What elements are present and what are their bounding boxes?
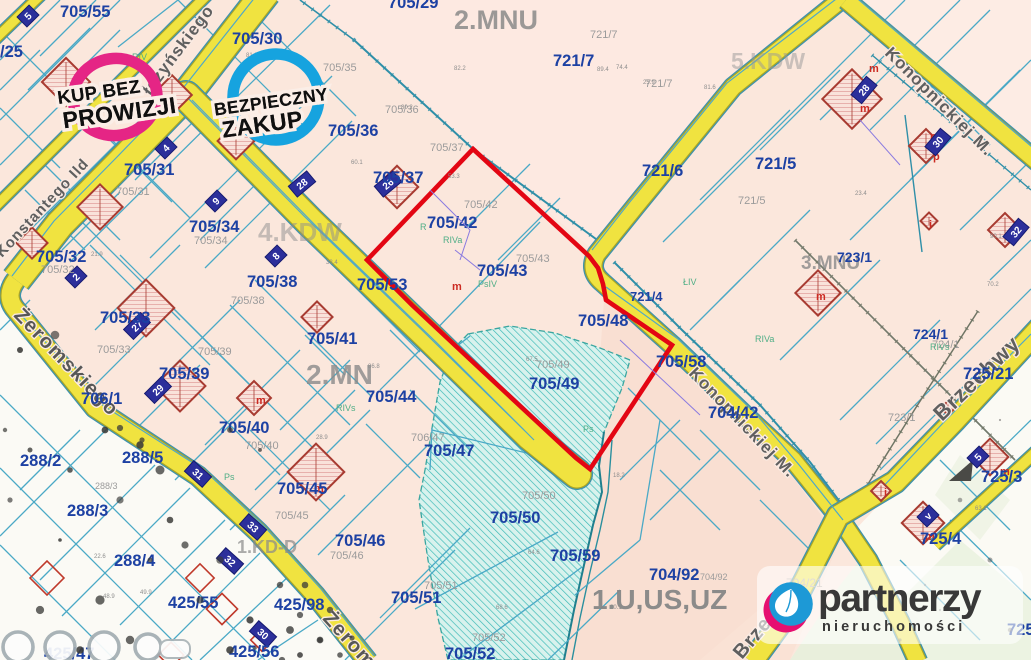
svg-text:R: R: [420, 222, 427, 232]
svg-text:1.KD-D: 1.KD-D: [237, 537, 297, 557]
svg-text:70.2: 70.2: [987, 282, 999, 288]
svg-text:705/38: 705/38: [247, 273, 297, 291]
svg-text:81.6: 81.6: [704, 85, 716, 91]
svg-text:68.6: 68.6: [496, 605, 508, 611]
svg-text:80.2: 80.2: [401, 105, 413, 111]
svg-text:705/37: 705/37: [373, 169, 423, 187]
svg-text:705/45: 705/45: [277, 480, 327, 498]
svg-text:74.4: 74.4: [616, 65, 628, 71]
svg-text:288/3: 288/3: [67, 502, 108, 520]
svg-text:705/46: 705/46: [335, 532, 385, 550]
svg-text:i: i: [884, 487, 887, 499]
svg-text:PsIV: PsIV: [478, 279, 497, 289]
svg-text:ŁIV: ŁIV: [683, 277, 697, 287]
svg-text:RIVs: RIVs: [930, 342, 950, 352]
svg-text:705/52: 705/52: [472, 632, 506, 644]
svg-text:288/5: 288/5: [122, 449, 163, 467]
svg-text:25.9: 25.9: [643, 80, 655, 86]
svg-text:i: i: [929, 219, 932, 231]
svg-text:723/1: 723/1: [837, 249, 872, 265]
svg-text:705/30: 705/30: [232, 30, 282, 48]
svg-text:705/31: 705/31: [124, 161, 174, 179]
svg-text:705/58: 705/58: [656, 353, 706, 371]
svg-text:86.8: 86.8: [368, 364, 380, 370]
svg-text:705/53: 705/53: [357, 276, 407, 294]
svg-text:705/29: 705/29: [388, 0, 438, 12]
svg-text:60.1: 60.1: [610, 605, 622, 611]
svg-text:m: m: [860, 103, 870, 115]
svg-text:288/2: 288/2: [20, 452, 61, 470]
svg-text:705/34: 705/34: [194, 235, 228, 247]
svg-text:723/1: 723/1: [888, 412, 916, 424]
svg-text:721/7: 721/7: [553, 52, 594, 70]
svg-text:705/33: 705/33: [97, 344, 131, 356]
svg-text:288/3: 288/3: [95, 481, 118, 491]
svg-text:721/5: 721/5: [738, 195, 766, 207]
svg-text:m: m: [816, 291, 826, 303]
svg-text:Ps: Ps: [224, 472, 235, 482]
svg-text:82.2: 82.2: [454, 66, 466, 72]
svg-text:721/7: 721/7: [590, 29, 618, 41]
svg-text:RIVa: RIVa: [755, 334, 774, 344]
svg-text:704/92: 704/92: [700, 572, 728, 582]
svg-text:21.9: 21.9: [91, 252, 103, 258]
svg-text:705/51: 705/51: [424, 580, 458, 592]
svg-text:2.MN: 2.MN: [306, 359, 373, 390]
svg-text:705/52: 705/52: [445, 645, 495, 660]
svg-text:705/37: 705/37: [430, 142, 464, 154]
svg-text:49.9: 49.9: [140, 590, 152, 596]
svg-text:725/21: 725/21: [963, 365, 1013, 383]
svg-text:23.4: 23.4: [855, 191, 867, 197]
svg-text:2.MNU: 2.MNU: [454, 5, 538, 35]
svg-text:704/42: 704/42: [708, 404, 758, 422]
svg-text:28.9: 28.9: [316, 435, 328, 441]
svg-text:705/50: 705/50: [522, 490, 556, 502]
svg-text:721/4: 721/4: [630, 289, 663, 304]
svg-text:705/42: 705/42: [464, 199, 498, 211]
svg-text:705/49: 705/49: [529, 375, 579, 393]
svg-text:705/36: 705/36: [328, 122, 378, 140]
svg-text:/25: /25: [0, 43, 23, 61]
svg-text:706/1: 706/1: [81, 390, 122, 408]
svg-text:705/45: 705/45: [275, 510, 309, 522]
svg-text:706/47: 706/47: [411, 432, 445, 444]
svg-text:725/4: 725/4: [920, 530, 962, 548]
svg-text:705/39: 705/39: [159, 365, 209, 383]
svg-text:63.1: 63.1: [975, 506, 987, 512]
svg-text:nieruchomości: nieruchomości: [822, 619, 965, 635]
svg-text:721/6: 721/6: [642, 162, 683, 180]
svg-text:89.4: 89.4: [597, 67, 609, 73]
svg-text:m: m: [256, 395, 266, 407]
svg-text:705/44: 705/44: [366, 388, 417, 406]
svg-text:33.4: 33.4: [326, 260, 338, 266]
svg-text:705/49: 705/49: [536, 359, 570, 371]
svg-text:m: m: [452, 281, 462, 293]
svg-text:18.2: 18.2: [613, 473, 625, 479]
svg-text:705/40: 705/40: [219, 419, 269, 437]
svg-text:705/38: 705/38: [231, 295, 265, 307]
svg-text:4.KDW: 4.KDW: [258, 217, 342, 247]
svg-text:60.1: 60.1: [351, 160, 363, 166]
svg-text:64.6: 64.6: [528, 550, 540, 556]
svg-text:704/92: 704/92: [649, 566, 699, 584]
svg-text:67.5: 67.5: [526, 357, 538, 363]
svg-text:m: m: [869, 63, 879, 75]
svg-text:705/31: 705/31: [116, 186, 150, 198]
svg-text:5.KDW: 5.KDW: [731, 48, 805, 74]
svg-text:48.9: 48.9: [103, 594, 115, 600]
svg-text:Ps: Ps: [583, 424, 594, 434]
svg-text:705/50: 705/50: [490, 509, 540, 527]
svg-text:705/43: 705/43: [516, 253, 550, 265]
svg-text:425/56: 425/56: [229, 643, 279, 660]
svg-text:22.6: 22.6: [94, 554, 106, 560]
svg-text:425/98: 425/98: [274, 596, 324, 614]
svg-text:721/5: 721/5: [755, 155, 796, 173]
svg-text:53.3: 53.3: [448, 174, 460, 180]
svg-text:705/59: 705/59: [550, 547, 600, 565]
svg-text:425/55: 425/55: [168, 594, 218, 612]
svg-text:705/35: 705/35: [323, 62, 357, 74]
svg-text:705/33: 705/33: [100, 309, 150, 327]
svg-text:705/55: 705/55: [60, 3, 110, 21]
svg-text:705/48: 705/48: [578, 312, 628, 330]
svg-text:705/47: 705/47: [424, 442, 474, 460]
svg-text:705/46: 705/46: [330, 550, 364, 562]
svg-text:RIVa: RIVa: [443, 235, 462, 245]
svg-text:705/41: 705/41: [307, 330, 357, 348]
svg-text:705/39: 705/39: [198, 346, 232, 358]
svg-text:705/34: 705/34: [189, 218, 240, 236]
svg-text:partnerzy: partnerzy: [818, 577, 982, 620]
svg-text:90.1: 90.1: [990, 234, 1002, 240]
svg-text:725/3: 725/3: [981, 468, 1022, 486]
svg-text:RIVs: RIVs: [336, 403, 356, 413]
svg-text:705/32: 705/32: [41, 264, 75, 276]
